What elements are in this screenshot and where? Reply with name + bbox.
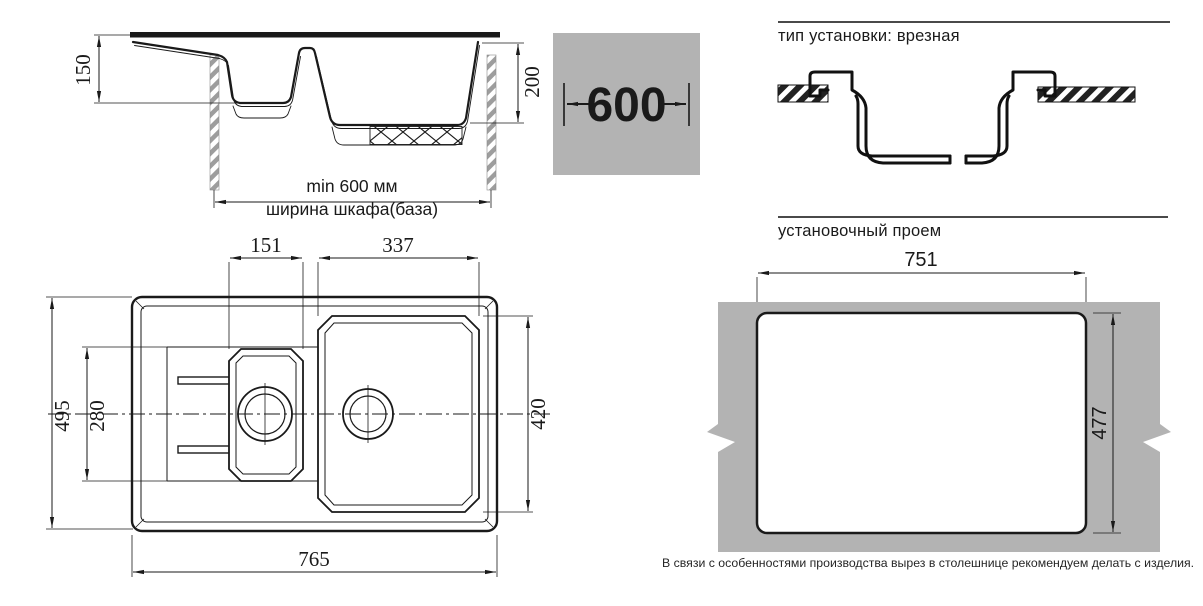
dim-opening-width: 751 (904, 249, 937, 271)
opening-title: установочный проем (778, 222, 941, 241)
divider-top (778, 21, 1170, 23)
rim-profile-right-inner (966, 96, 1009, 156)
cabinet-base-label: ширина шкафа(база) (266, 199, 438, 219)
cabinet-wall-left (210, 55, 219, 190)
divider-middle (778, 216, 1168, 218)
dim-large-bowl-depth: 420 (526, 398, 550, 430)
sink-profile-inner (135, 46, 480, 129)
rim-profile-left-outer (810, 72, 950, 163)
dim-depth-large: 200 (520, 66, 544, 98)
dim-large-bowl-width: 337 (382, 233, 414, 257)
side-section-view: 150 200 min 600 мм ширина шкафа(база) (40, 15, 555, 220)
cabinet-width-badge: 600 (553, 33, 700, 175)
install-type-title: тип установки: врезная (778, 27, 960, 46)
production-note: В связи с особенностями производства выр… (662, 556, 1194, 570)
inset-mount-drawing (775, 60, 1170, 210)
badge-width-value: 600 (586, 79, 666, 132)
bowl-base-crosshatch (370, 127, 462, 145)
min-width-label: min 600 мм (306, 176, 397, 196)
dim-small-bowl-depth: 280 (85, 400, 109, 432)
rim-profile-right-outer (966, 72, 1055, 163)
cabinet-wall-right (487, 55, 496, 190)
sink-rim-band (130, 32, 500, 38)
cutout-rect (757, 313, 1086, 533)
sink-spec-sheet: 150 200 min 600 мм ширина шкафа(база) 60… (0, 0, 1203, 606)
installation-opening-drawing: 751 477 (695, 245, 1200, 565)
sink-profile-outer (133, 42, 478, 125)
dim-overall-width: 765 (298, 547, 330, 571)
rim-profile-left-inner (856, 96, 950, 156)
small-bowl-shell (233, 106, 291, 118)
top-view-drawing: 151 337 495 280 420 765 (35, 235, 565, 585)
dim-small-bowl-width: 151 (250, 233, 282, 257)
dim-depth-small: 150 (71, 54, 95, 86)
dim-overall-depth: 495 (50, 400, 74, 432)
dim-opening-height: 477 (1089, 406, 1111, 439)
